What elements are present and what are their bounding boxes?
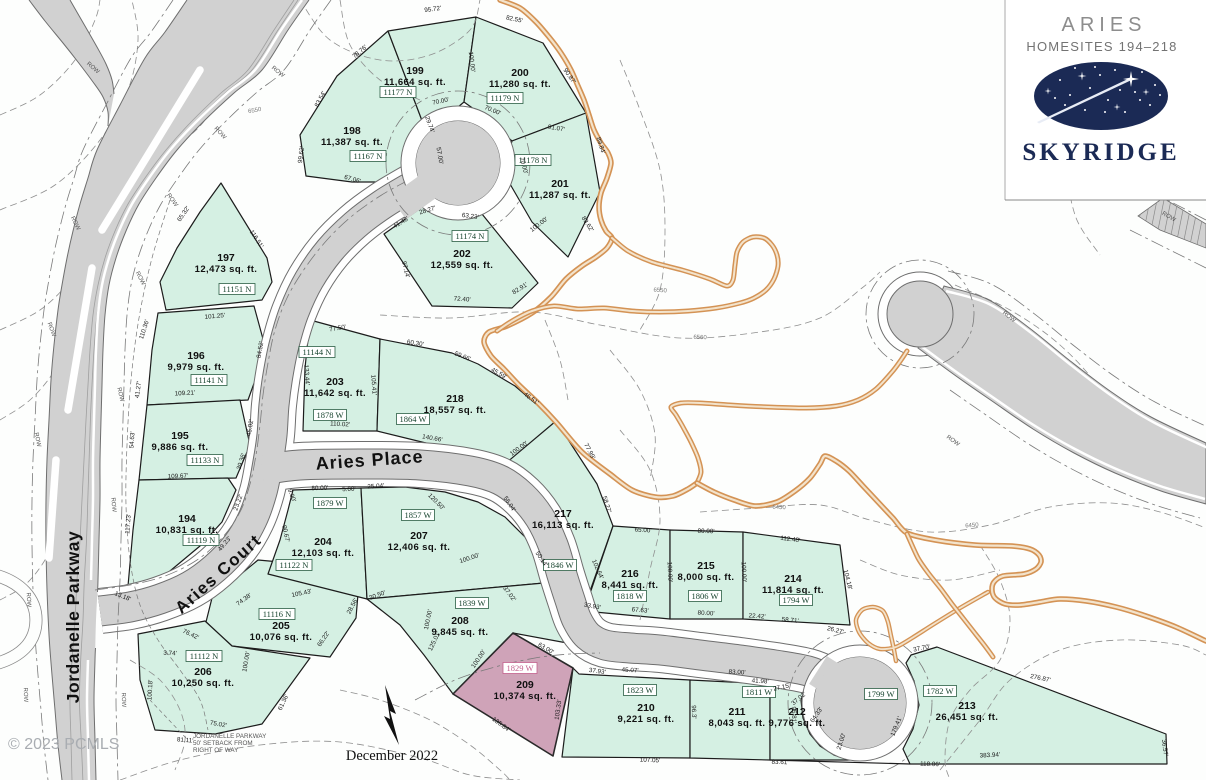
svg-text:1782 W: 1782 W (927, 686, 954, 696)
svg-text:205: 205 (272, 620, 290, 632)
svg-text:105.41': 105.41' (369, 374, 377, 395)
svg-text:11179 N: 11179 N (491, 93, 520, 103)
svg-text:1806 W: 1806 W (692, 591, 719, 601)
svg-text:109.67': 109.67' (168, 473, 189, 481)
svg-text:11,642 sq. ft.: 11,642 sq. ft. (304, 388, 366, 399)
svg-text:5.00': 5.00' (342, 486, 356, 493)
svg-text:11,387 sq. ft.: 11,387 sq. ft. (321, 137, 383, 148)
svg-text:December 2022: December 2022 (346, 748, 438, 764)
svg-text:22.42': 22.42' (748, 612, 765, 620)
svg-text:197: 197 (217, 252, 235, 264)
svg-text:6560: 6560 (693, 335, 707, 341)
svg-text:383.94': 383.94' (980, 751, 1001, 759)
svg-text:200: 200 (511, 67, 529, 79)
svg-text:12,406 sq. ft.: 12,406 sq. ft. (388, 542, 451, 553)
svg-text:ROW: ROW (120, 693, 127, 708)
svg-text:ROW: ROW (25, 592, 32, 607)
svg-text:50' SETBACK FROM: 50' SETBACK FROM (193, 740, 253, 747)
svg-text:25.04': 25.04' (367, 482, 384, 490)
svg-text:100.00': 100.00' (740, 562, 748, 583)
svg-text:1799 W: 1799 W (868, 689, 895, 699)
svg-text:214: 214 (784, 573, 802, 585)
svg-text:210: 210 (637, 702, 655, 714)
svg-text:ROW: ROW (22, 688, 29, 703)
svg-text:8,043 sq. ft.: 8,043 sq. ft. (709, 718, 766, 729)
svg-text:10,250 sq. ft.: 10,250 sq. ft. (172, 678, 235, 689)
svg-text:RIGHT OF WAY: RIGHT OF WAY (193, 747, 239, 754)
svg-text:198: 198 (343, 125, 361, 137)
svg-text:211: 211 (729, 706, 746, 718)
svg-text:11119 N: 11119 N (187, 535, 216, 545)
svg-text:213: 213 (958, 700, 976, 712)
svg-text:1857 W: 1857 W (405, 510, 432, 520)
svg-text:11,287 sq. ft.: 11,287 sq. ft. (529, 190, 591, 201)
svg-text:67.63': 67.63' (631, 606, 649, 614)
svg-text:72.40': 72.40' (453, 295, 470, 303)
svg-text:3.74': 3.74' (163, 650, 177, 657)
svg-text:206: 206 (194, 666, 212, 678)
svg-text:JORDANELLE PARKWAY: JORDANELLE PARKWAY (193, 733, 267, 740)
svg-text:10,374 sq. ft.: 10,374 sq. ft. (494, 691, 557, 702)
svg-text:96.3': 96.3' (690, 705, 697, 719)
svg-text:218: 218 (446, 393, 464, 405)
svg-text:11141 N: 11141 N (195, 375, 224, 385)
svg-text:12,103 sq. ft.: 12,103 sq. ft. (292, 548, 355, 559)
svg-text:1864 W: 1864 W (400, 414, 427, 424)
svg-text:SKYRIDGE: SKYRIDGE (1022, 139, 1179, 166)
svg-text:1839 W: 1839 W (459, 598, 486, 608)
svg-text:100.18': 100.18' (146, 680, 154, 701)
svg-text:1878 W: 1878 W (317, 410, 344, 420)
svg-text:ARIES: ARIES (1061, 14, 1146, 36)
svg-text:9,886 sq. ft.: 9,886 sq. ft. (152, 442, 209, 453)
svg-text:204: 204 (314, 536, 332, 548)
svg-text:HOMESITES 194–218: HOMESITES 194–218 (1026, 39, 1177, 54)
svg-text:8,441 sq. ft.: 8,441 sq. ft. (602, 580, 659, 591)
svg-text:11133 N: 11133 N (191, 455, 220, 465)
svg-text:1794 W: 1794 W (783, 595, 810, 605)
svg-text:11151 N: 11151 N (223, 284, 252, 294)
svg-text:11144 N: 11144 N (303, 347, 332, 357)
svg-text:© 2023 PCMLS: © 2023 PCMLS (8, 736, 119, 753)
svg-text:80.00': 80.00' (697, 528, 714, 536)
svg-text:11174 N: 11174 N (456, 231, 485, 241)
svg-text:1829 W: 1829 W (507, 663, 534, 673)
svg-text:Jordanelle Parkway: Jordanelle Parkway (63, 531, 83, 703)
svg-text:83.61': 83.61' (771, 759, 788, 767)
svg-text:201: 201 (551, 178, 569, 190)
svg-text:133.44': 133.44' (302, 364, 310, 385)
svg-text:80.00': 80.00' (311, 485, 328, 493)
svg-text:65.00': 65.00' (634, 527, 651, 535)
svg-text:209: 209 (516, 679, 534, 691)
svg-text:1811 W: 1811 W (746, 687, 773, 697)
svg-text:196: 196 (187, 350, 205, 362)
svg-text:6550: 6550 (653, 288, 667, 295)
svg-text:1846 W: 1846 W (547, 560, 574, 570)
svg-text:11122 N: 11122 N (280, 560, 309, 570)
svg-text:207: 207 (410, 530, 428, 542)
svg-text:217: 217 (554, 508, 572, 520)
svg-text:195: 195 (171, 430, 189, 442)
svg-text:202: 202 (453, 248, 471, 260)
svg-text:41.98': 41.98' (751, 677, 768, 685)
svg-text:83.00': 83.00' (728, 669, 745, 677)
svg-text:10,076 sq. ft.: 10,076 sq. ft. (250, 632, 313, 643)
svg-text:11116 N: 11116 N (263, 609, 292, 619)
svg-text:118.06': 118.06' (920, 761, 940, 769)
svg-text:100.00': 100.00' (666, 562, 674, 583)
svg-text:107.05': 107.05' (640, 757, 661, 765)
svg-text:11,280 sq. ft.: 11,280 sq. ft. (489, 79, 551, 90)
svg-text:54.63': 54.63' (128, 431, 136, 448)
svg-text:12,559 sq. ft.: 12,559 sq. ft. (431, 260, 494, 271)
svg-text:199: 199 (406, 65, 424, 77)
svg-text:110.02': 110.02' (330, 420, 350, 428)
svg-text:117.23': 117.23' (124, 514, 132, 534)
svg-text:26,451 sq. ft.: 26,451 sq. ft. (936, 712, 999, 723)
svg-text:11167 N: 11167 N (354, 151, 383, 161)
svg-text:81.11': 81.11' (177, 736, 194, 744)
svg-text:6450: 6450 (772, 505, 786, 511)
svg-text:215: 215 (697, 560, 715, 572)
svg-text:16,113 sq. ft.: 16,113 sq. ft. (532, 520, 594, 531)
svg-text:109.21': 109.21' (175, 389, 196, 397)
svg-text:11177 N: 11177 N (384, 87, 413, 97)
svg-text:1879 W: 1879 W (317, 498, 344, 508)
svg-text:80.00': 80.00' (697, 610, 714, 618)
svg-text:216: 216 (621, 568, 639, 580)
svg-text:9,979 sq. ft.: 9,979 sq. ft. (168, 362, 225, 373)
svg-text:6450: 6450 (965, 522, 979, 529)
svg-text:1818 W: 1818 W (617, 591, 644, 601)
svg-text:18,557 sq. ft.: 18,557 sq. ft. (424, 405, 487, 416)
svg-text:208: 208 (451, 615, 469, 627)
svg-text:95.81': 95.81' (790, 706, 798, 723)
svg-text:45.07': 45.07' (621, 667, 638, 675)
svg-text:203: 203 (326, 376, 344, 388)
svg-text:12,473 sq. ft.: 12,473 sq. ft. (195, 264, 258, 275)
svg-text:11112 N: 11112 N (190, 651, 219, 661)
svg-text:194: 194 (178, 513, 196, 525)
svg-text:1823 W: 1823 W (627, 685, 654, 695)
svg-text:9,221 sq. ft.: 9,221 sq. ft. (618, 714, 675, 725)
svg-text:8,000 sq. ft.: 8,000 sq. ft. (678, 572, 735, 583)
